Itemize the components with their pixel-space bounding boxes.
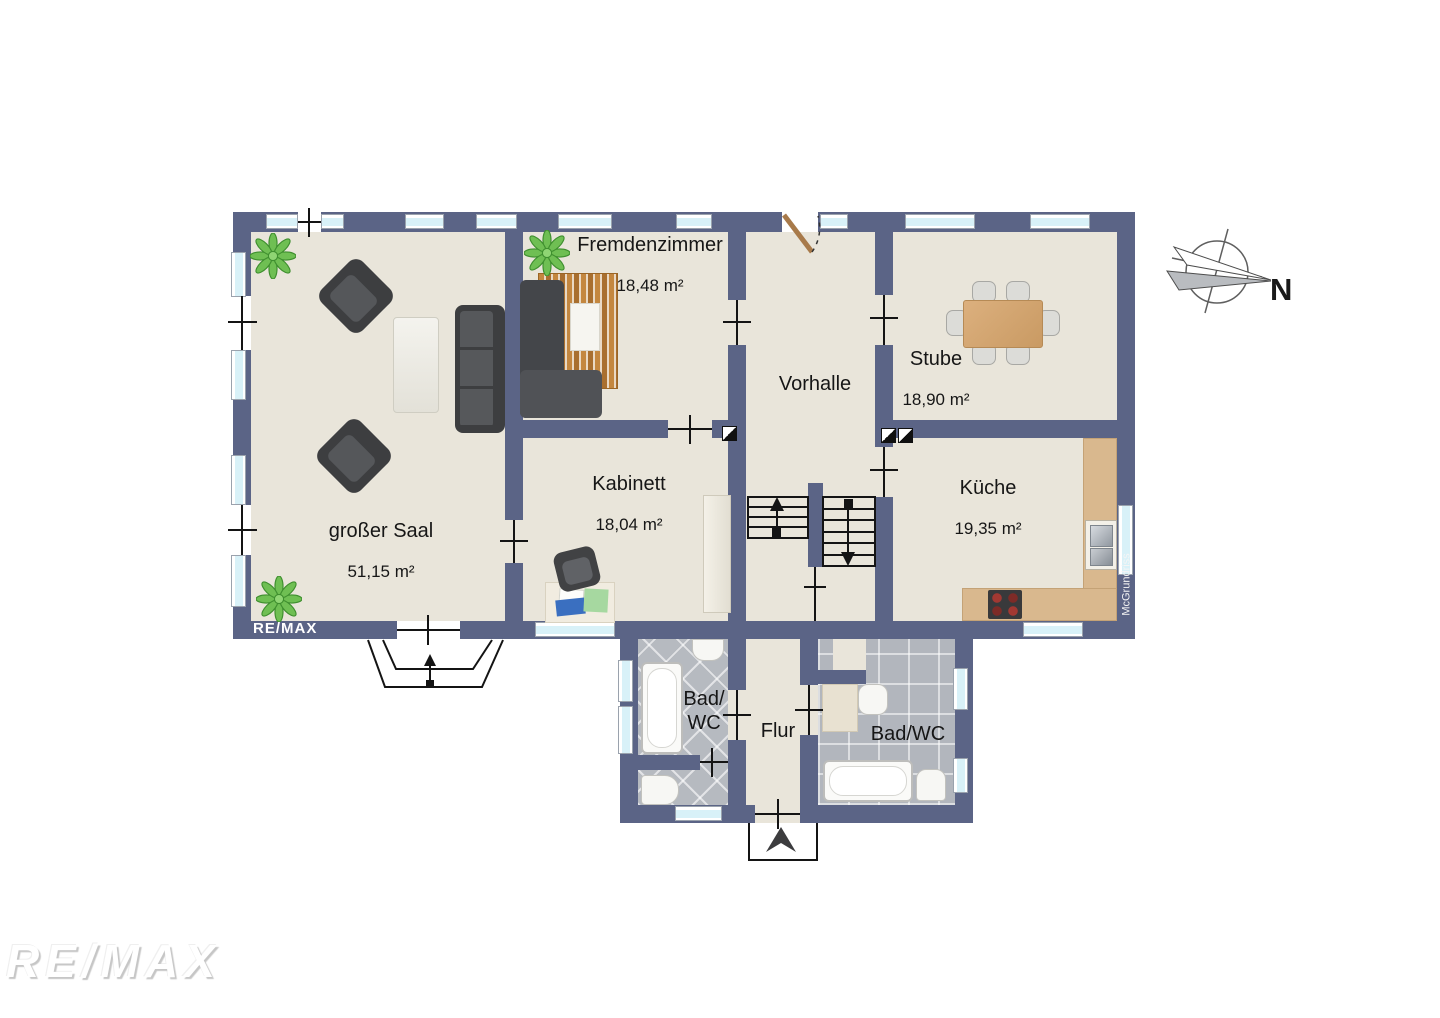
plant-icon [524, 230, 570, 276]
remax-wall-logo: RE/MAX [253, 620, 317, 637]
room-label-flur: Flur [761, 700, 795, 762]
door-swing-icon [898, 428, 913, 443]
toilet [916, 769, 946, 801]
room-label-bad-links: Bad/ WC [683, 668, 724, 754]
room-name: Bad/ WC [683, 687, 724, 735]
room-name: Stube [902, 347, 969, 371]
remax-watermark: RE/MAX [6, 934, 221, 988]
room-name: Kabinett [592, 472, 665, 496]
bathroom-sink [692, 639, 724, 661]
room-area: 18,90 m² [902, 390, 969, 410]
door-opening-saal-terrace [397, 621, 460, 639]
door-swing-icon [722, 426, 737, 441]
paper-sheet-green [583, 588, 608, 612]
kitchen-counter [962, 588, 1117, 621]
window [905, 214, 975, 229]
window [1030, 214, 1090, 229]
window [953, 758, 968, 793]
bathtub [641, 662, 683, 754]
wall-badrechts-stub [818, 670, 866, 684]
wardrobe [703, 495, 731, 613]
room-area: 19,35 m² [954, 519, 1021, 539]
dining-table [963, 300, 1043, 348]
room-label-vorhalle: Vorhalle [779, 353, 851, 415]
door-swing-icon [881, 428, 896, 443]
window [266, 214, 298, 229]
compass-icon [1167, 229, 1271, 313]
compass-north-label: N [1270, 272, 1292, 308]
toilet [641, 775, 679, 805]
window [231, 252, 246, 297]
door-opening-entry [782, 212, 818, 232]
door-opening-flur-badlinks [728, 690, 746, 740]
room-name: Fremdenzimmer [577, 233, 723, 257]
window [618, 706, 633, 754]
door-opening-kueche [875, 447, 893, 497]
exterior-steps [368, 640, 503, 688]
window-joint-gap [233, 505, 251, 555]
wall-outer-bottom [233, 621, 1135, 639]
floorplan-canvas: großer Saal 51,15 m² Fremdenzimmer 18,48… [0, 0, 1440, 1018]
window [231, 555, 246, 607]
bathroom-shelf [822, 684, 858, 732]
window [618, 660, 633, 702]
window [321, 214, 344, 229]
window [231, 350, 246, 400]
corner-sofa [520, 370, 602, 418]
door-opening-fremdenzimmer-kabinett [668, 420, 712, 438]
door-opening-saal-kabinett [505, 520, 523, 563]
room-area: 18,48 m² [577, 276, 723, 296]
door-opening-flur-entrance [755, 805, 800, 823]
window [535, 622, 615, 637]
plant-icon [250, 233, 296, 279]
door-opening-stube [875, 295, 893, 345]
plant-icon [256, 576, 302, 622]
sofa [455, 305, 505, 433]
window-joint-gap [233, 296, 251, 350]
window [405, 214, 444, 229]
kitchen-sink [1085, 520, 1117, 570]
room-label-fremdenzimmer: Fremdenzimmer 18,48 m² [577, 214, 723, 316]
wall-stair-stub [808, 483, 823, 567]
room-label-bad-rechts: Bad/WC [871, 703, 945, 765]
bathtub [823, 760, 913, 802]
coffee-table [393, 317, 439, 413]
window [231, 455, 246, 505]
door-opening-fremdenzimmer [728, 300, 746, 345]
window-joint-gap [298, 212, 321, 232]
room-area: 51,15 m² [329, 562, 434, 582]
room-label-kabinett: Kabinett 18,04 m² [592, 453, 665, 555]
room-name: Vorhalle [779, 372, 851, 396]
window [476, 214, 517, 229]
room-label-saal: großer Saal 51,15 m² [329, 500, 434, 602]
paper-sheet-blue [555, 598, 586, 617]
room-name: Bad/WC [871, 722, 945, 746]
room-name: Küche [954, 476, 1021, 500]
window [675, 806, 722, 821]
stove [988, 590, 1022, 619]
wall-vorhalle-stube [875, 232, 893, 621]
room-label-kueche: Küche 19,35 m² [954, 457, 1021, 559]
window [1023, 622, 1083, 637]
room-name: großer Saal [329, 519, 434, 543]
wall-badlinks-partition [638, 755, 700, 770]
room-label-stube: Stube 18,90 m² [902, 328, 969, 430]
entrance-step-box [748, 823, 818, 861]
room-area: 18,04 m² [592, 515, 665, 535]
door-opening-flur-badrechts [800, 685, 818, 735]
bad-rechts-nook [833, 639, 866, 670]
window [953, 668, 968, 710]
room-name: Flur [761, 719, 795, 743]
wall-annex-right [955, 639, 973, 823]
window [820, 214, 848, 229]
mcgrundriss-credit: McGrundriss [1121, 529, 1136, 641]
